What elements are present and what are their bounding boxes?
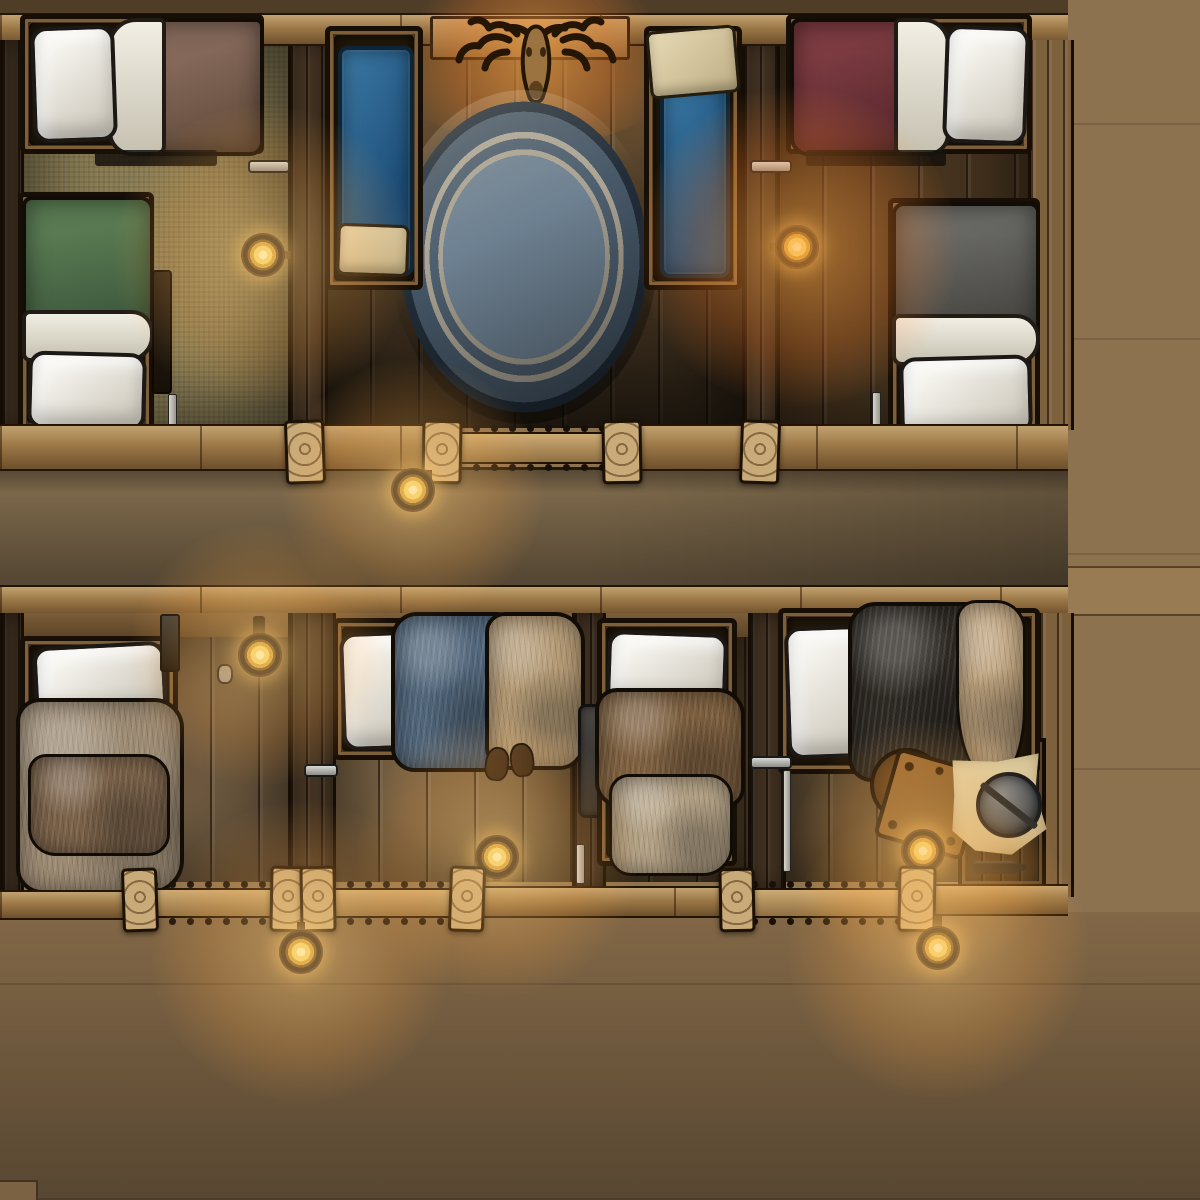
fur-throw — [28, 754, 170, 856]
pale-fur-foot — [609, 774, 733, 876]
cot-right-mattress — [660, 84, 730, 278]
wall-sw-s1 — [288, 613, 336, 891]
tan-pelt-drape — [956, 600, 1026, 778]
trapdoor-hinge — [970, 861, 1028, 874]
railing-spindles — [150, 917, 276, 926]
wall-dagger[interactable] — [160, 614, 180, 672]
wall-lantern-icon[interactable] — [241, 233, 285, 277]
railing-spindles — [750, 880, 906, 889]
door-handle-nw[interactable] — [248, 160, 290, 173]
lower-railing — [748, 888, 908, 918]
lower-railing — [148, 888, 278, 918]
upper-railing — [434, 432, 628, 464]
cot-right[interactable] — [644, 26, 742, 290]
lower-bottom-wall-b — [474, 886, 724, 918]
lower-cabin-block — [0, 585, 1068, 912]
round-rug — [391, 90, 657, 424]
railing-post — [718, 868, 755, 933]
deck-bottom-shading — [0, 912, 1200, 1200]
cot-left-cloth — [336, 223, 410, 277]
wall-lantern-icon[interactable] — [775, 225, 819, 269]
railing-post — [121, 867, 159, 932]
pillow — [30, 25, 118, 144]
bed-nw-vertical[interactable] — [18, 192, 154, 432]
railing-spindles — [750, 917, 906, 926]
round-shield[interactable] — [976, 772, 1042, 838]
wall-lounge-ne — [742, 40, 780, 428]
pillow — [942, 25, 1030, 146]
door-handle-ne[interactable] — [750, 160, 792, 173]
sheet-fold — [894, 18, 950, 156]
bed-nw-bench-shadow — [95, 150, 217, 166]
bed-nw-horizontal[interactable] — [20, 14, 264, 154]
pillow — [27, 350, 147, 431]
deck-bottom-left-patch — [0, 1180, 38, 1200]
shield-bar — [979, 781, 1038, 829]
walking-staff[interactable] — [783, 770, 791, 872]
cot-left[interactable] — [325, 26, 423, 290]
wall-lantern-icon[interactable] — [238, 633, 282, 677]
railing-spindles — [436, 424, 626, 433]
bed-s2-vertical[interactable] — [597, 618, 737, 866]
deck-lantern-icon[interactable] — [916, 926, 960, 970]
railing-post — [448, 865, 486, 932]
railing-post — [897, 866, 936, 933]
railing-spindles — [150, 880, 276, 889]
battle-map-scene — [0, 0, 1200, 1200]
railing-post — [284, 419, 326, 484]
deck-right-band — [1068, 566, 1200, 616]
door-handle-sw[interactable] — [304, 764, 338, 777]
door-handle-se[interactable] — [750, 756, 792, 769]
bed-ne-vertical[interactable] — [888, 198, 1040, 438]
railing-spindles — [328, 917, 454, 926]
upper-bottom-wall-right — [616, 424, 1068, 471]
railing-post — [601, 420, 642, 485]
candlestick-s2[interactable] — [576, 844, 585, 884]
cot-right-cloth — [645, 24, 741, 100]
sheet-fold — [108, 18, 166, 156]
rug-shading — [391, 90, 657, 424]
bed-ne-bench-shadow — [806, 150, 946, 166]
bed-s1-horizontal[interactable] — [333, 618, 573, 760]
upper-bottom-wall-left — [0, 424, 440, 471]
walkway-lantern-icon[interactable] — [391, 468, 435, 512]
wall-sword[interactable] — [152, 270, 172, 394]
wall-knob — [217, 664, 233, 684]
deck-lantern-icon[interactable] — [279, 930, 323, 974]
bed-sw-vertical[interactable] — [20, 636, 178, 884]
bed-ne-horizontal[interactable] — [786, 14, 1032, 154]
railing-spindles — [328, 880, 454, 889]
upper-cabin-block — [0, 0, 1068, 467]
lower-bottom-wall-c — [926, 884, 1068, 916]
lower-bottom-wall-a — [0, 890, 126, 920]
railing-spindles — [436, 463, 626, 472]
railing-post — [739, 419, 781, 484]
wall-nw-lounge — [288, 40, 328, 428]
lower-railing — [326, 888, 456, 918]
middle-walkway — [0, 467, 1068, 590]
